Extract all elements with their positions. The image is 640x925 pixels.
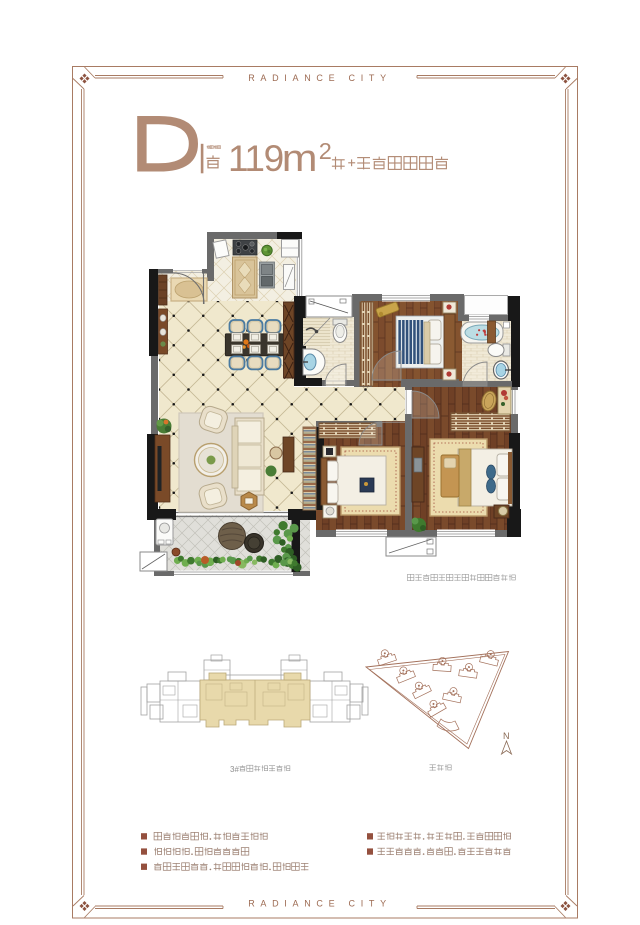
svg-text:RADIANCE CITY: RADIANCE CITY (248, 899, 392, 909)
svg-text:2: 2 (319, 138, 332, 164)
svg-text:3#: 3# (230, 765, 239, 774)
svg-text:m: m (282, 136, 318, 179)
svg-text:119: 119 (228, 138, 283, 179)
svg-text:RADIANCE CITY: RADIANCE CITY (248, 73, 392, 83)
svg-text:N: N (503, 731, 510, 741)
